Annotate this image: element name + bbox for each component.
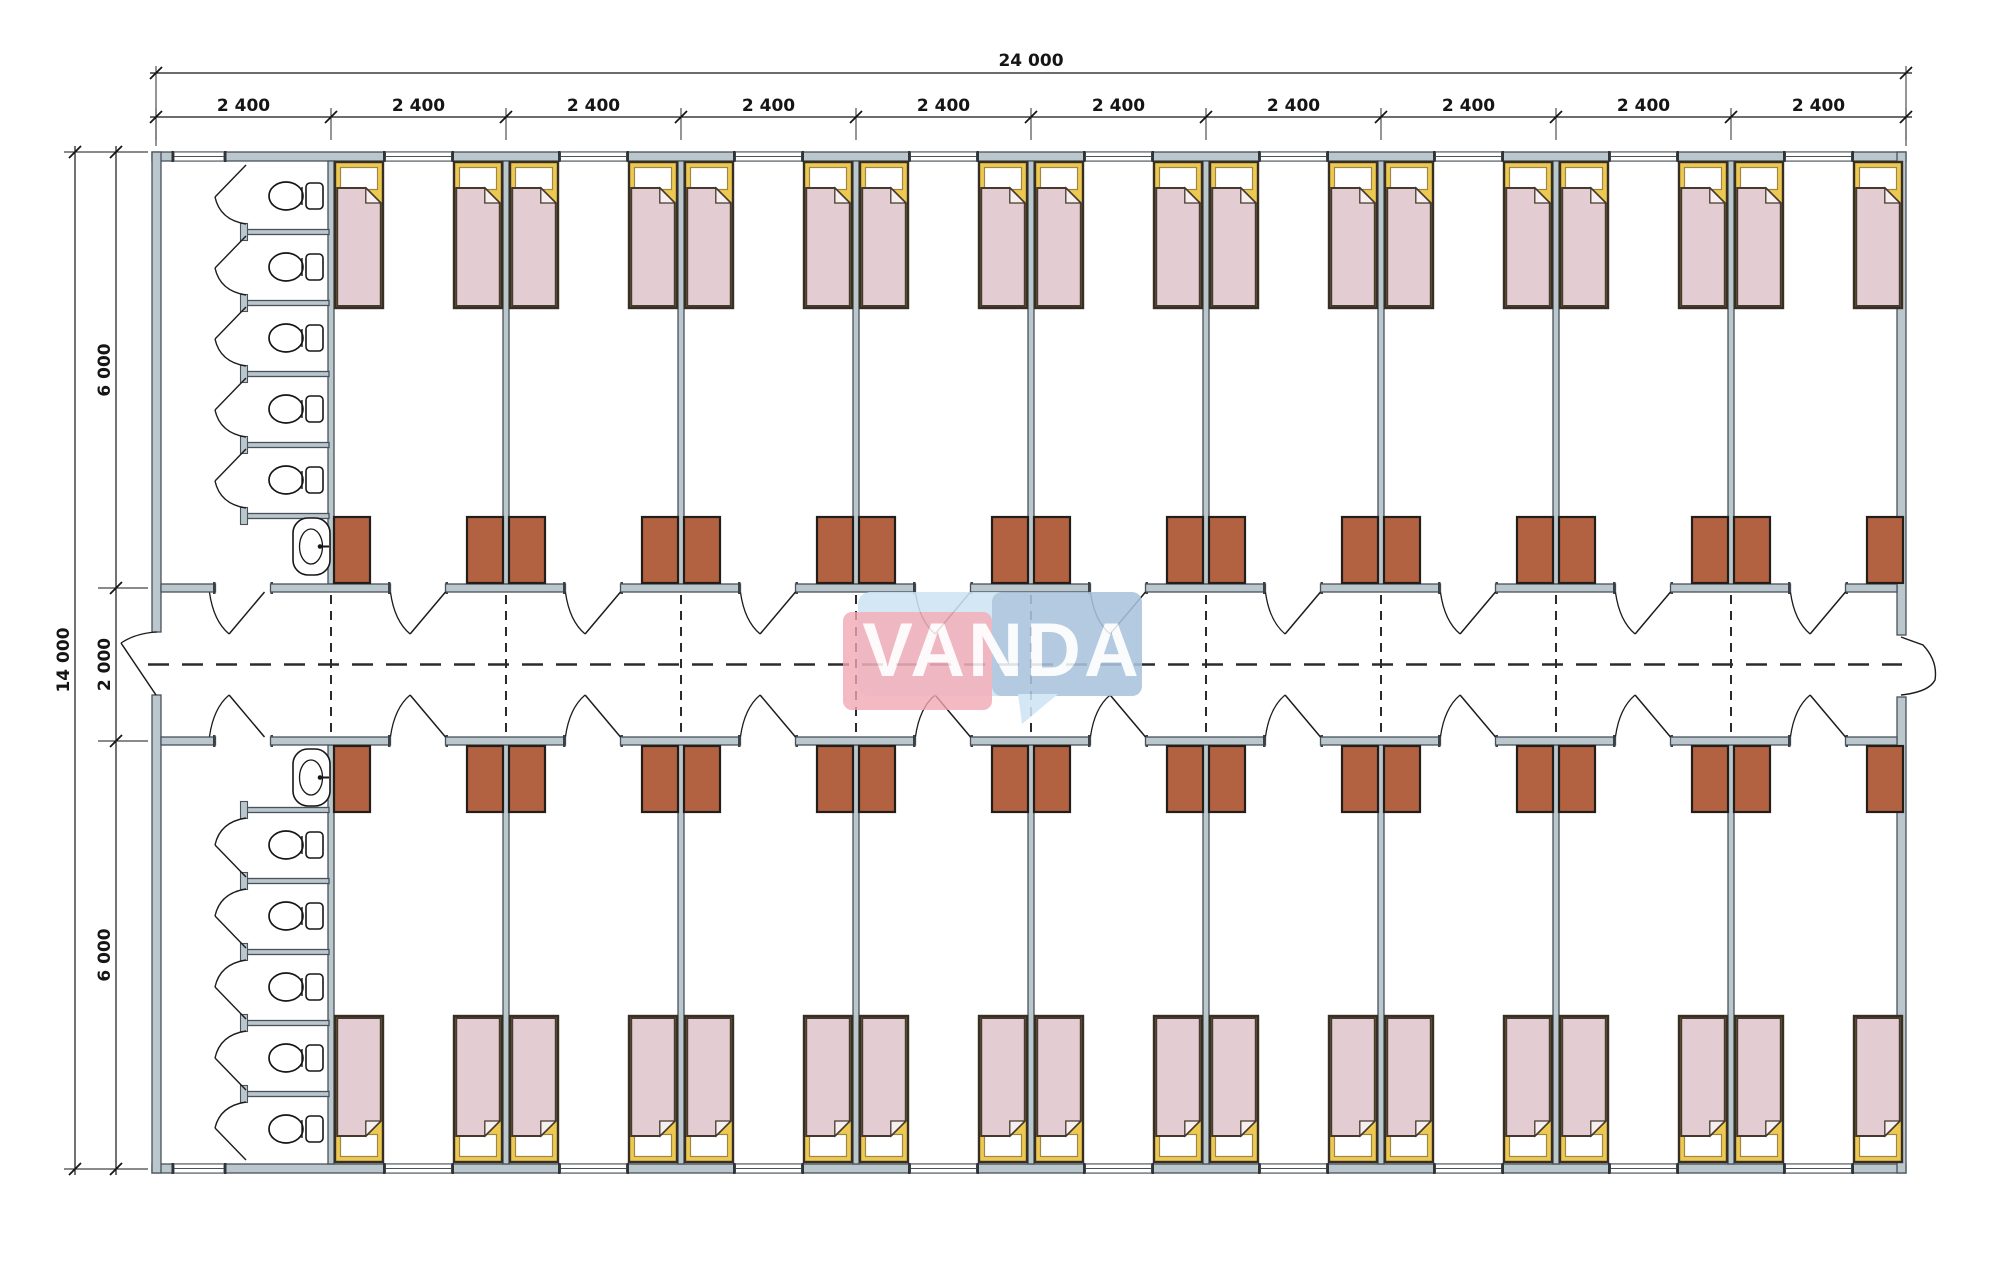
- wardrobe: [1167, 746, 1203, 812]
- dimension-label: 2 400: [567, 96, 620, 116]
- door-swing: [1441, 592, 1496, 634]
- wardrobe: [992, 746, 1028, 812]
- door-swing: [1266, 592, 1321, 634]
- bed: [979, 162, 1027, 308]
- toilet-icon: [269, 1115, 323, 1143]
- wardrobe: [1209, 746, 1245, 812]
- door-swing: [1091, 695, 1146, 737]
- wardrobe: [642, 746, 678, 812]
- wardrobe: [334, 517, 370, 583]
- wardrobe: [859, 517, 895, 583]
- window-icon: [1258, 151, 1329, 162]
- door-swing: [1791, 695, 1846, 737]
- bed: [1854, 162, 1902, 308]
- stall-door-swing: [215, 818, 246, 877]
- wardrobe: [1559, 517, 1595, 583]
- bed: [979, 1016, 1027, 1162]
- bed: [1035, 162, 1083, 308]
- bed: [1154, 1016, 1202, 1162]
- wardrobe: [642, 517, 678, 583]
- window-icon: [733, 151, 804, 162]
- door-swing: [1266, 695, 1321, 737]
- stall-doors: [215, 165, 246, 1160]
- wardrobe: [1692, 746, 1728, 812]
- dimension-label: 2 400: [392, 96, 445, 116]
- bed: [629, 162, 677, 308]
- bed: [1504, 1016, 1552, 1162]
- floor-plan: VANDA24 0002 4002 4002 4002 4002 4002 40…: [0, 0, 2000, 1285]
- bed: [1154, 162, 1202, 308]
- dimension-label: 6 000: [95, 928, 115, 981]
- window-icon: [908, 151, 979, 162]
- wardrobe: [1734, 517, 1770, 583]
- bed: [860, 162, 908, 308]
- window-icon: [1083, 1163, 1154, 1174]
- dimension-label: 2 000: [95, 638, 115, 691]
- bed: [1504, 162, 1552, 308]
- dimension-label: 2 400: [1792, 96, 1845, 116]
- window-icon: [1433, 1163, 1504, 1174]
- window-icon: [1783, 1163, 1854, 1174]
- door-swing: [741, 695, 796, 737]
- door-swing: [1441, 695, 1496, 737]
- door-swing: [566, 592, 621, 634]
- wardrobe: [684, 746, 720, 812]
- window-icon: [172, 1163, 227, 1174]
- floor-plan-drawing: VANDA24 0002 4002 4002 4002 4002 4002 40…: [0, 0, 2000, 1285]
- bed: [1385, 1016, 1433, 1162]
- dimension-label: 24 000: [998, 51, 1063, 71]
- door-swing: [1616, 592, 1671, 634]
- dimension-label: 6 000: [95, 343, 115, 396]
- bed: [1385, 162, 1433, 308]
- wardrobe: [1517, 517, 1553, 583]
- bed: [1035, 1016, 1083, 1162]
- dimension-label: 2 400: [1442, 96, 1495, 116]
- bed: [510, 162, 558, 308]
- door-swing: [391, 592, 446, 634]
- toilet-icon: [269, 1044, 323, 1072]
- stall-door-swing: [215, 307, 246, 366]
- wardrobe: [1384, 746, 1420, 812]
- stall-door-swing: [215, 449, 246, 508]
- wardrobe: [509, 746, 545, 812]
- bed: [804, 162, 852, 308]
- door-swing-east: [1901, 637, 1936, 695]
- dimension-label: 2 400: [1092, 96, 1145, 116]
- wardrobe: [1034, 746, 1070, 812]
- fixtures: [269, 182, 330, 1143]
- bed: [1854, 1016, 1902, 1162]
- dimension-label: 2 400: [1617, 96, 1670, 116]
- bed: [335, 162, 383, 308]
- bed: [1210, 1016, 1258, 1162]
- window-icon: [1258, 1163, 1329, 1174]
- wardrobe: [467, 517, 503, 583]
- sink-icon: [293, 749, 330, 806]
- wardrobe: [1867, 746, 1903, 812]
- window-icon: [383, 1163, 454, 1174]
- bed: [685, 162, 733, 308]
- stall-door-swing: [215, 165, 246, 224]
- wardrobe: [684, 517, 720, 583]
- door-swing: [210, 695, 265, 737]
- stall-door-swing: [215, 889, 246, 948]
- wardrobe: [509, 517, 545, 583]
- window-icon: [172, 151, 227, 162]
- door-swing: [1616, 695, 1671, 737]
- dimension-label: 14 000: [54, 627, 74, 692]
- door-swing: [391, 695, 446, 737]
- watermark: VANDA: [843, 592, 1142, 724]
- bed: [1210, 162, 1258, 308]
- wardrobe: [1209, 517, 1245, 583]
- bed: [510, 1016, 558, 1162]
- wardrobe: [1167, 517, 1203, 583]
- stall-door-swing: [215, 960, 246, 1019]
- window-icon: [558, 1163, 629, 1174]
- wardrobe: [1867, 517, 1903, 583]
- window-icon: [908, 1163, 979, 1174]
- wardrobe: [467, 746, 503, 812]
- stall-door-swing: [215, 1102, 246, 1160]
- dimension-label: 2 400: [1267, 96, 1320, 116]
- toilet-icon: [269, 466, 323, 494]
- window-icon: [1433, 151, 1504, 162]
- window-icon: [383, 151, 454, 162]
- door-swing: [741, 592, 796, 634]
- stall-door-swing: [215, 378, 246, 437]
- bed: [1679, 162, 1727, 308]
- wardrobe: [334, 746, 370, 812]
- window-icon: [733, 1163, 804, 1174]
- wardrobe: [859, 746, 895, 812]
- door-swing: [566, 695, 621, 737]
- dimension-label: 2 400: [217, 96, 270, 116]
- toilet-icon: [269, 182, 323, 210]
- wardrobe: [1384, 517, 1420, 583]
- stall-door-swing: [215, 1031, 246, 1090]
- wardrobe: [1734, 746, 1770, 812]
- dimension-label: 2 400: [917, 96, 970, 116]
- bed: [804, 1016, 852, 1162]
- bed: [1329, 162, 1377, 308]
- bed: [685, 1016, 733, 1162]
- wardrobe: [1517, 746, 1553, 812]
- wardrobe: [992, 517, 1028, 583]
- bed: [1735, 1016, 1783, 1162]
- bed: [1679, 1016, 1727, 1162]
- dimension-label: 2 400: [742, 96, 795, 116]
- wardrobe: [1342, 517, 1378, 583]
- toilet-icon: [269, 395, 323, 423]
- bed: [454, 162, 502, 308]
- toilet-icon: [269, 253, 323, 281]
- wardrobe: [1342, 746, 1378, 812]
- window-icon: [1083, 151, 1154, 162]
- bed: [1560, 1016, 1608, 1162]
- bed: [1735, 162, 1783, 308]
- bed: [335, 1016, 383, 1162]
- window-icon: [1608, 151, 1679, 162]
- sink-icon: [293, 518, 330, 575]
- stall-door-swing: [215, 236, 246, 295]
- window-icon: [1608, 1163, 1679, 1174]
- wardrobe: [1559, 746, 1595, 812]
- toilet-icon: [269, 324, 323, 352]
- window-icon: [1783, 151, 1854, 162]
- wardrobe: [817, 517, 853, 583]
- bed: [860, 1016, 908, 1162]
- window-icon: [558, 151, 629, 162]
- watermark-text: VANDA: [862, 608, 1142, 693]
- door-swing: [1791, 592, 1846, 634]
- toilet-icon: [269, 902, 323, 930]
- wardrobe: [1034, 517, 1070, 583]
- bed: [1329, 1016, 1377, 1162]
- toilet-icon: [269, 973, 323, 1001]
- bed: [629, 1016, 677, 1162]
- toilet-icon: [269, 831, 323, 859]
- wardrobe: [817, 746, 853, 812]
- bed: [1560, 162, 1608, 308]
- bed: [454, 1016, 502, 1162]
- wardrobe: [1692, 517, 1728, 583]
- door-swing: [210, 592, 265, 634]
